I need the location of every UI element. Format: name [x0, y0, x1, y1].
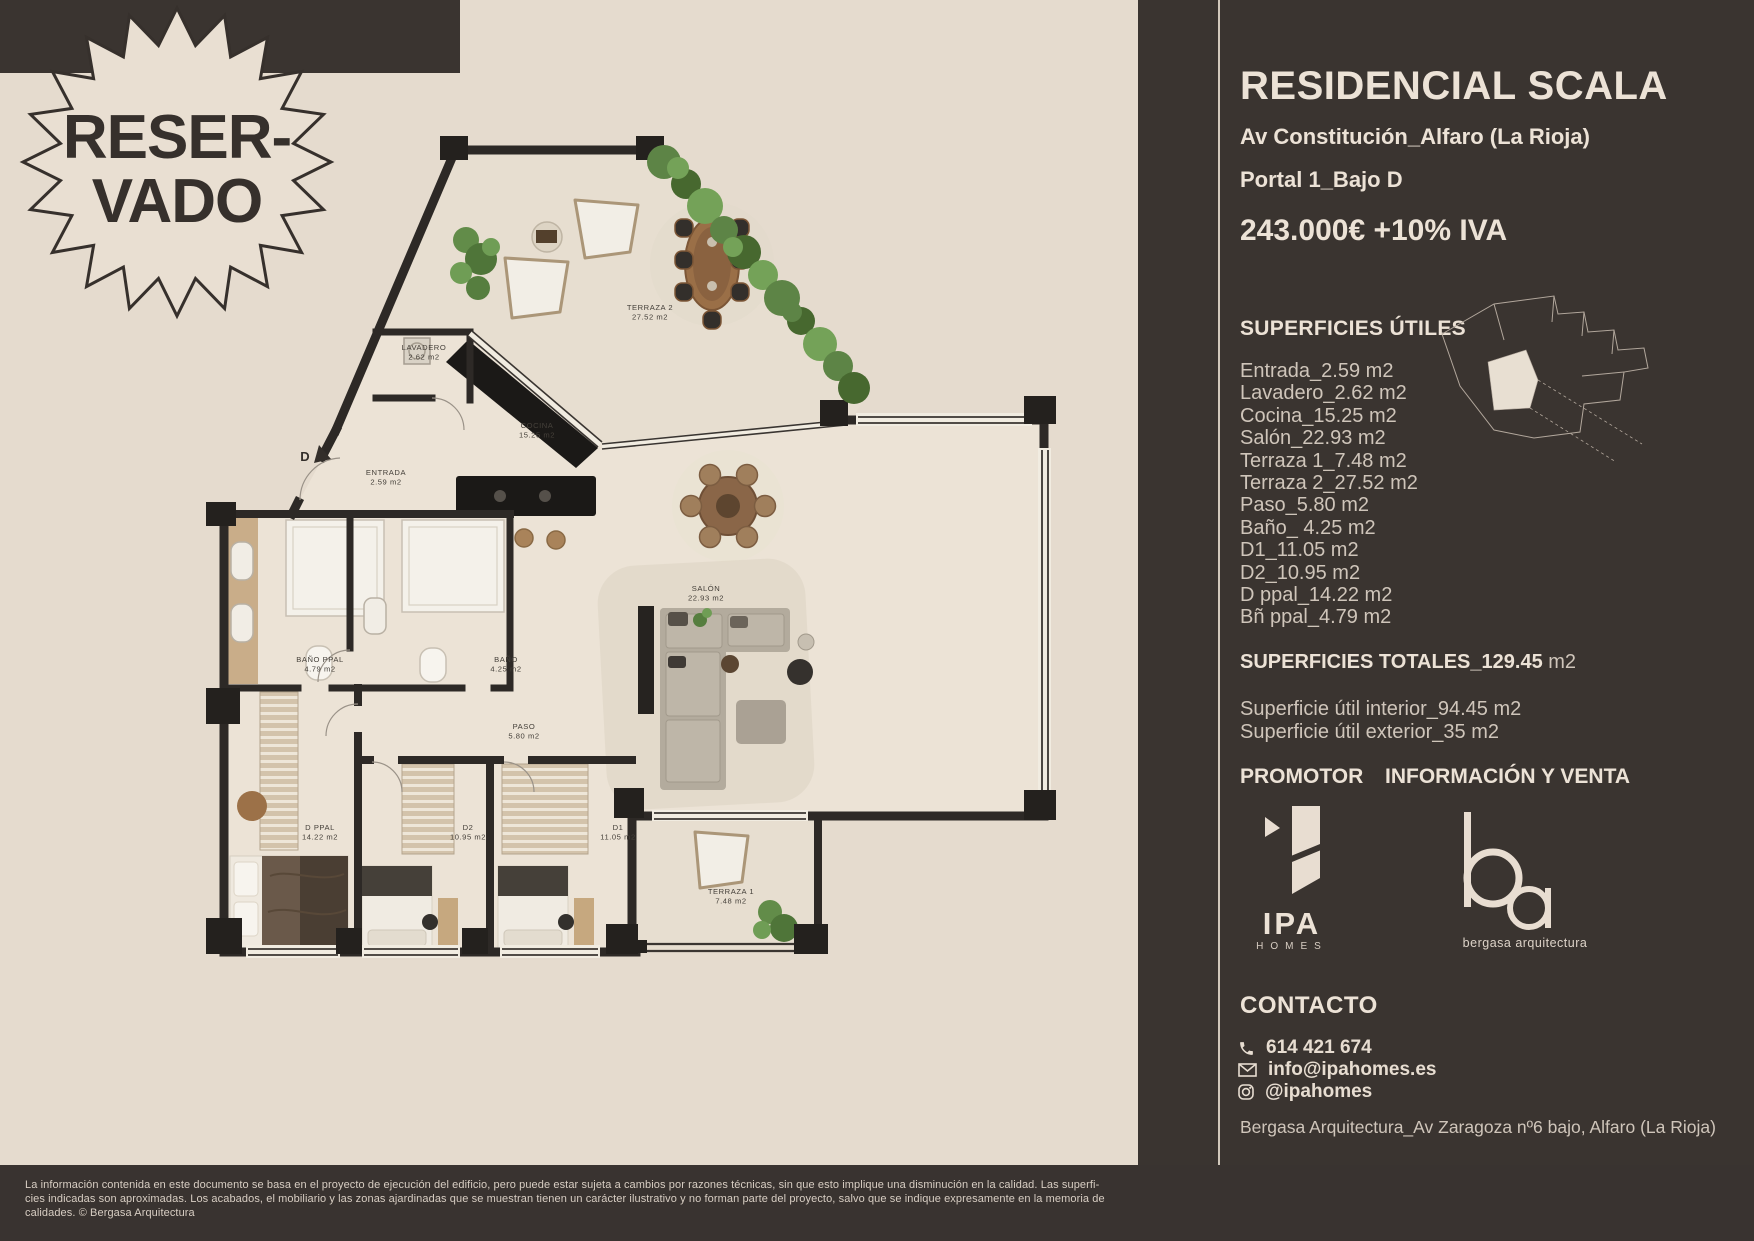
superficie-item: Paso_5.80 m2 — [1240, 494, 1418, 516]
bergasa-arquitectura-logo-icon — [1455, 800, 1605, 940]
superficie-item: Terraza 2_27.52 m2 — [1240, 472, 1418, 494]
property-address: Av Constitución_Alfaro (La Rioja) — [1240, 124, 1590, 150]
informacion-venta-heading: INFORMACIÓN Y VENTA — [1385, 765, 1630, 789]
promotor-heading: PROMOTOR — [1240, 765, 1363, 789]
sidebar-divider-line — [1218, 0, 1220, 1165]
room-label: PASO5.80 m2 — [508, 722, 539, 741]
disclaimer-band: La información contenida en este documen… — [0, 1165, 1754, 1241]
page-title: RESIDENCIAL SCALA — [1240, 64, 1668, 109]
property-price: 243.000€ +10% IVA — [1240, 214, 1507, 248]
superficie-exterior: Superficie útil exterior_35 m2 — [1240, 721, 1499, 744]
contacto-heading: CONTACTO — [1240, 992, 1378, 1020]
superficie-item: Salón_22.93 m2 — [1240, 427, 1418, 449]
contact-instagram[interactable]: @ipahomes — [1238, 1081, 1372, 1103]
ipa-homes-logo-sub: HOMES — [1240, 941, 1344, 952]
mail-icon — [1238, 1063, 1257, 1077]
reservado-badge: RESER- VADO — [0, 0, 360, 340]
contact-email-text: info@ipahomes.es — [1268, 1059, 1436, 1081]
superficie-interior: Superficie útil interior_94.45 m2 — [1240, 698, 1521, 721]
disclaimer-line: calidades. © Bergasa Arquitectura — [25, 1207, 1135, 1221]
room-label: SALÓN22.93 m2 — [688, 584, 724, 603]
disclaimer-text: La información contenida en este documen… — [25, 1179, 1135, 1220]
superficie-item: D ppal_14.22 m2 — [1240, 584, 1418, 606]
superficie-item: Entrada_2.59 m2 — [1240, 360, 1418, 382]
ipa-homes-logo-text: IPA — [1240, 906, 1344, 942]
room-label: LAVADERO2.62 m2 — [402, 343, 447, 362]
badge-line-2: VADO — [92, 167, 263, 236]
superficies-utiles-list: Entrada_2.59 m2Lavadero_2.62 m2Cocina_15… — [1240, 360, 1418, 629]
contact-phone-number: 614 421 674 — [1266, 1037, 1372, 1059]
disclaimer-line: cies indicadas son aproximadas. Los acab… — [25, 1193, 1135, 1207]
room-label: D PPAL14.22 m2 — [302, 823, 338, 842]
superficie-item: D2_10.95 m2 — [1240, 562, 1418, 584]
instagram-icon — [1238, 1084, 1254, 1100]
ipa-homes-logo-icon — [1258, 804, 1328, 899]
room-label: BAÑO4.25 m2 — [490, 655, 521, 674]
badge-line-1: RESER- — [63, 103, 291, 172]
superficie-item: D1_11.05 m2 — [1240, 539, 1418, 561]
superficie-item: Lavadero_2.62 m2 — [1240, 382, 1418, 404]
contact-email[interactable]: info@ipahomes.es — [1238, 1059, 1436, 1081]
architect-address: Bergasa Arquitectura_Av Zaragoza nº6 baj… — [1240, 1117, 1716, 1138]
phone-icon — [1238, 1040, 1255, 1057]
info-sidebar — [1138, 0, 1754, 1241]
superficie-item: Terraza 1_7.48 m2 — [1240, 450, 1418, 472]
contact-instagram-handle: @ipahomes — [1265, 1081, 1372, 1103]
bergasa-arquitectura-logo-text: bergasa arquitectura — [1445, 936, 1605, 950]
disclaimer-line: La información contenida en este documen… — [25, 1179, 1135, 1193]
contact-phone[interactable]: 614 421 674 — [1238, 1037, 1372, 1059]
superficies-totales: SUPERFICIES TOTALES_129.45 m2 — [1240, 651, 1576, 674]
room-label: ENTRADA2.59 m2 — [366, 468, 407, 487]
room-label: TERRAZA 227.52 m2 — [627, 303, 673, 322]
superficie-item: Bñ ppal_4.79 m2 — [1240, 606, 1418, 628]
svg-text:D: D — [300, 449, 309, 464]
property-unit: Portal 1_Bajo D — [1240, 167, 1403, 193]
room-label: COCINA15.25 m2 — [519, 421, 555, 440]
unit-locator-map — [1432, 292, 1752, 472]
superficie-item: Baño_ 4.25 m2 — [1240, 517, 1418, 539]
superficie-item: Cocina_15.25 m2 — [1240, 405, 1418, 427]
flyer-page: D TERRAZA 227.52 m2LAVADERO2.62 m2COCINA… — [0, 0, 1754, 1241]
